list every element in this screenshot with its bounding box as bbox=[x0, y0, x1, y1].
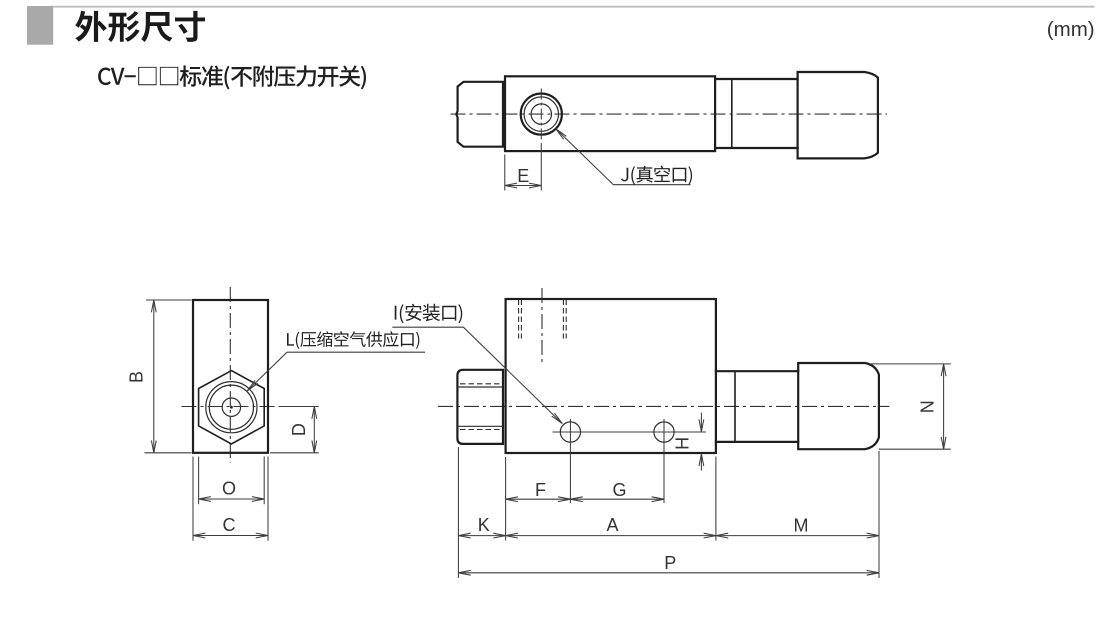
svg-text:M: M bbox=[794, 515, 809, 535]
svg-text:(mm): (mm) bbox=[1047, 18, 1095, 41]
svg-text:D: D bbox=[289, 423, 309, 436]
svg-text:O: O bbox=[222, 479, 236, 499]
svg-text:E: E bbox=[517, 166, 529, 186]
svg-text:N: N bbox=[918, 400, 938, 413]
svg-text:A: A bbox=[606, 515, 618, 535]
svg-text:B: B bbox=[127, 371, 147, 383]
svg-text:P: P bbox=[664, 553, 676, 573]
svg-text:C: C bbox=[223, 515, 236, 535]
svg-text:K: K bbox=[478, 515, 490, 535]
svg-text:H: H bbox=[673, 437, 693, 450]
svg-text:G: G bbox=[612, 480, 626, 500]
svg-text:F: F bbox=[535, 480, 546, 500]
